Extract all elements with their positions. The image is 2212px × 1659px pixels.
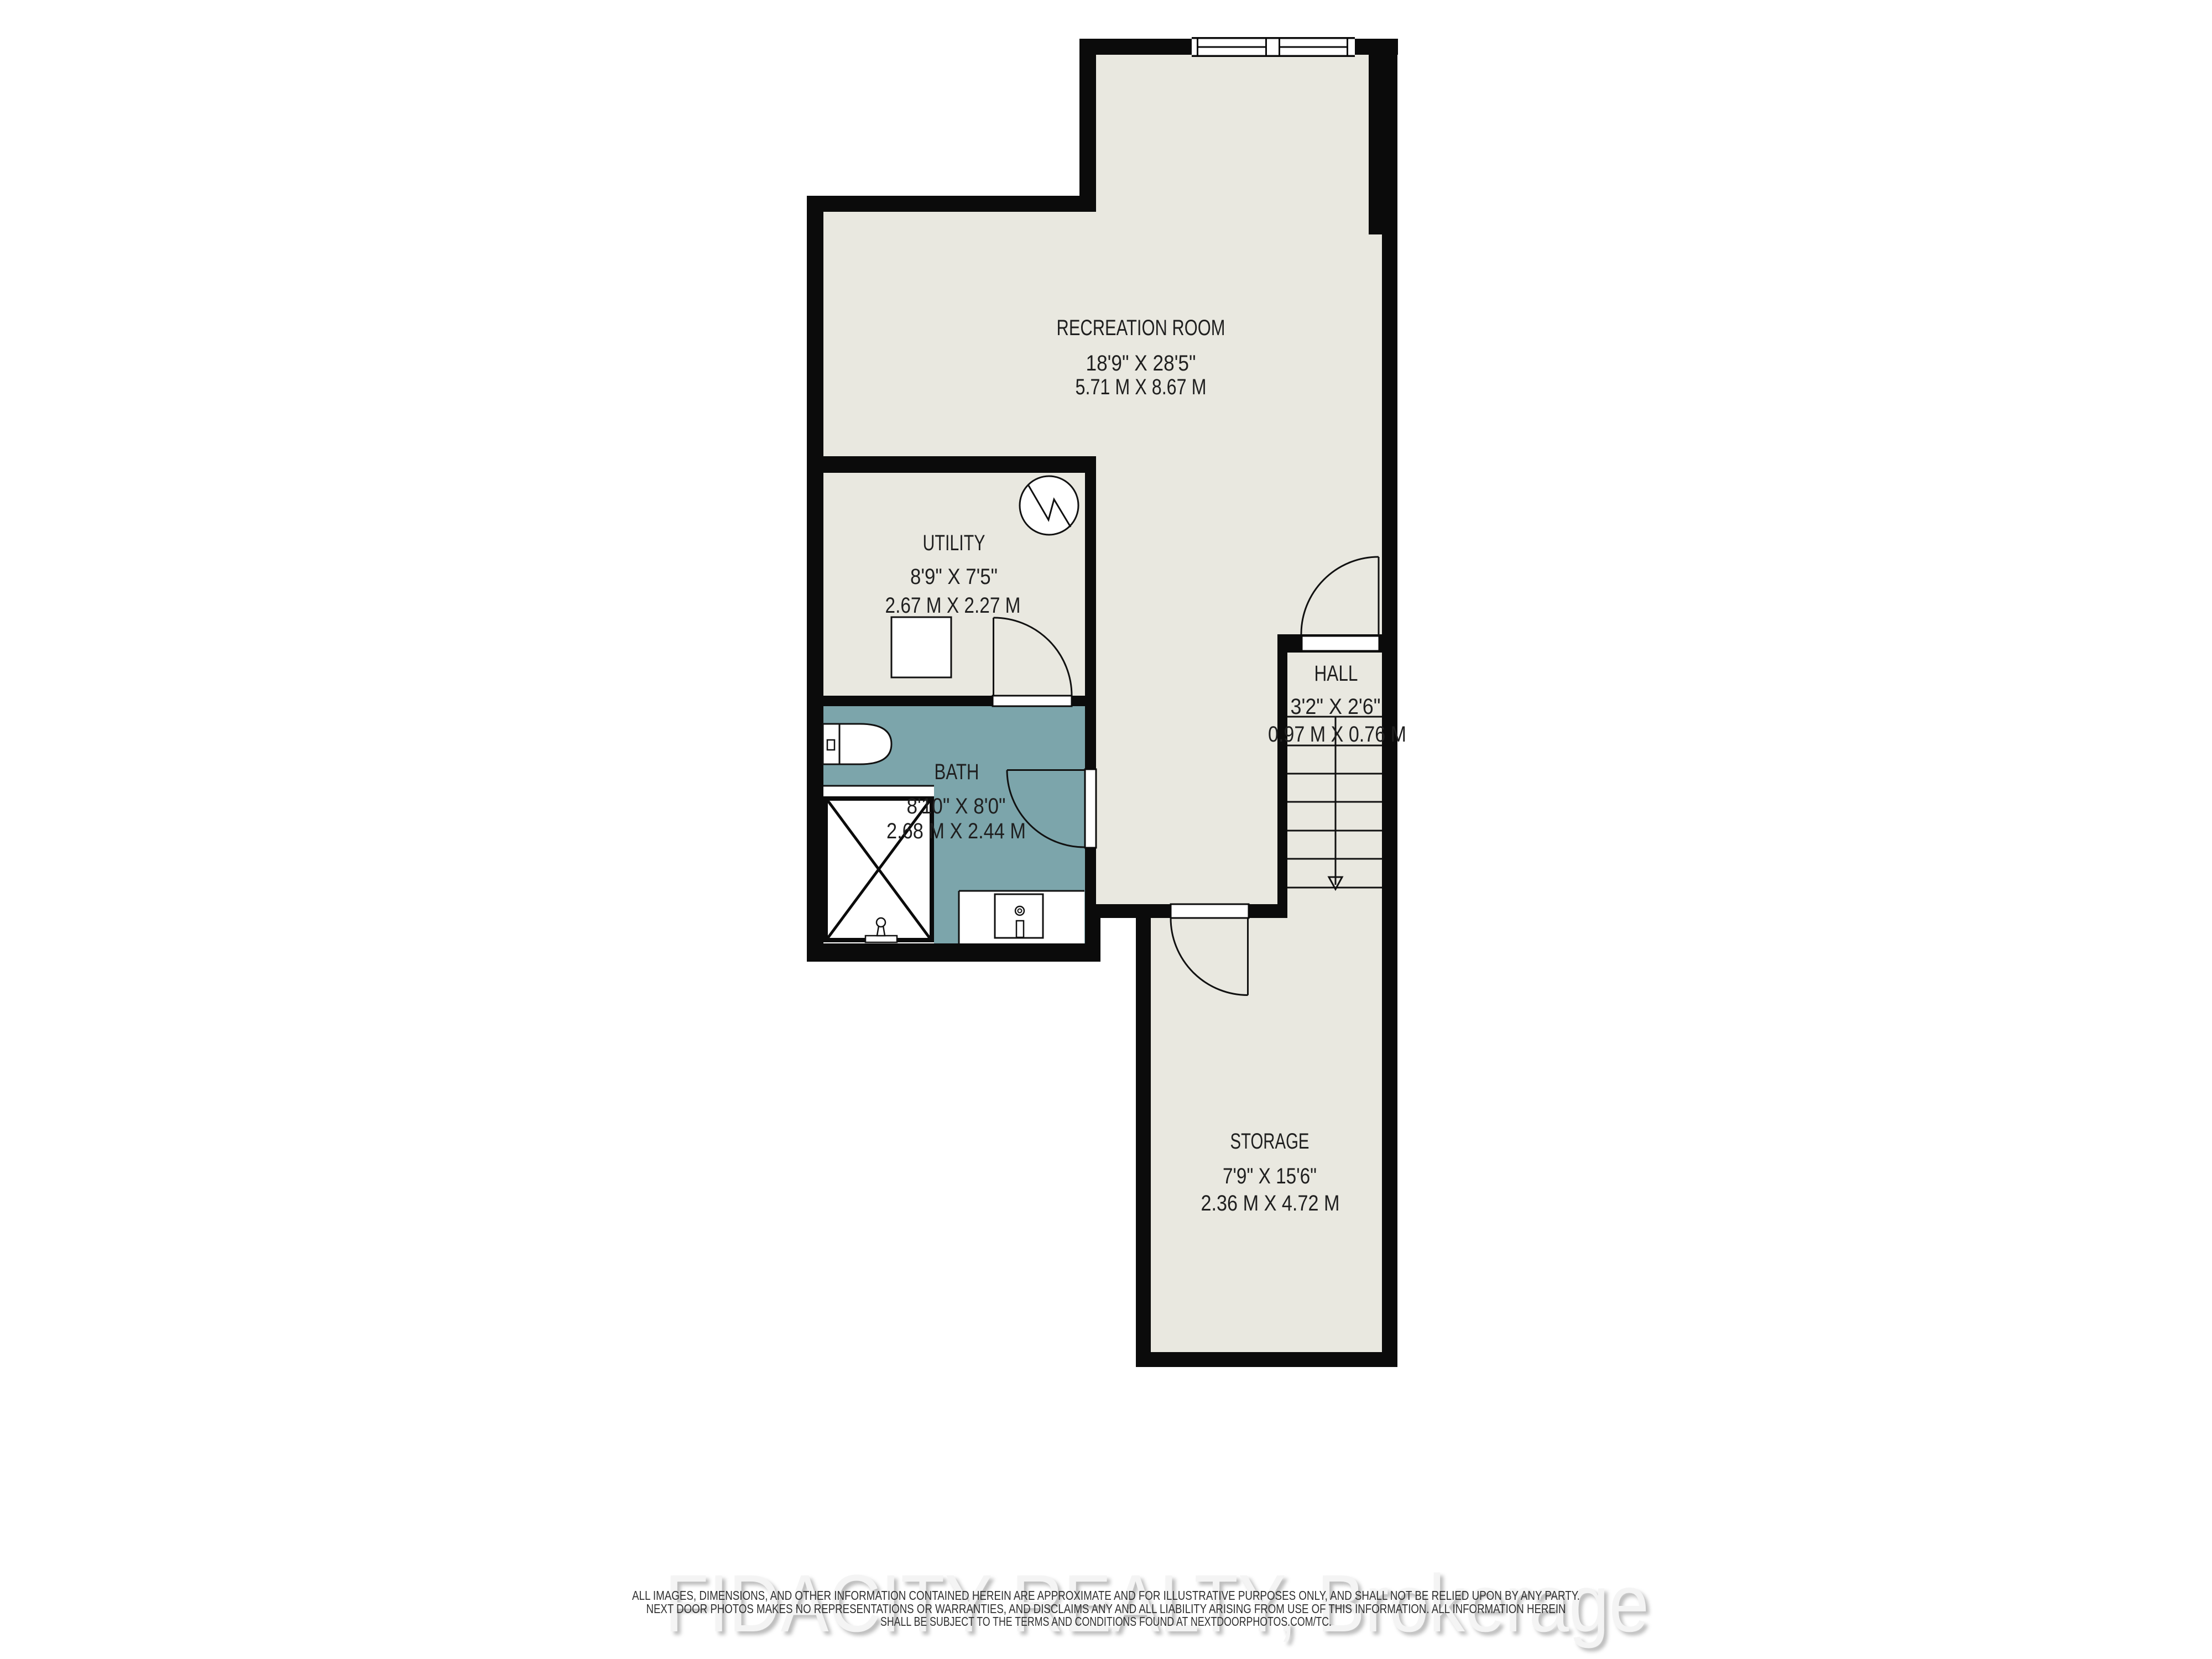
svg-text:8'10" X 8'0": 8'10" X 8'0" <box>907 794 1006 818</box>
svg-text:UTILITY: UTILITY <box>923 531 985 555</box>
svg-text:BATH: BATH <box>935 760 979 784</box>
svg-text:STORAGE: STORAGE <box>1230 1129 1310 1154</box>
svg-text:2.68 M X 2.44 M: 2.68 M X 2.44 M <box>886 819 1026 843</box>
svg-text:RECREATION ROOM: RECREATION ROOM <box>1057 316 1225 340</box>
svg-text:18'9" X 28'5": 18'9" X 28'5" <box>1086 351 1196 375</box>
svg-text:7'9" X 15'6": 7'9" X 15'6" <box>1223 1164 1317 1188</box>
svg-text:2.36 M X 4.72 M: 2.36 M X 4.72 M <box>1201 1191 1340 1215</box>
svg-text:SHALL BE SUBJECT TO THE TERMS: SHALL BE SUBJECT TO THE TERMS AND CONDIT… <box>880 1614 1332 1629</box>
svg-text:8'9" X 7'5": 8'9" X 7'5" <box>910 565 998 589</box>
svg-text:5.71 M X 8.67 M: 5.71 M X 8.67 M <box>1076 375 1207 399</box>
svg-text:HALL: HALL <box>1314 661 1358 686</box>
svg-text:0.97 M X 0.76 M: 0.97 M X 0.76 M <box>1268 722 1406 747</box>
svg-text:3'2" X 2'6": 3'2" X 2'6" <box>1291 695 1381 719</box>
svg-text:2.67 M X 2.27 M: 2.67 M X 2.27 M <box>885 593 1021 618</box>
svg-text:ALL IMAGES, DIMENSIONS, AND OT: ALL IMAGES, DIMENSIONS, AND OTHER INFORM… <box>632 1588 1580 1603</box>
